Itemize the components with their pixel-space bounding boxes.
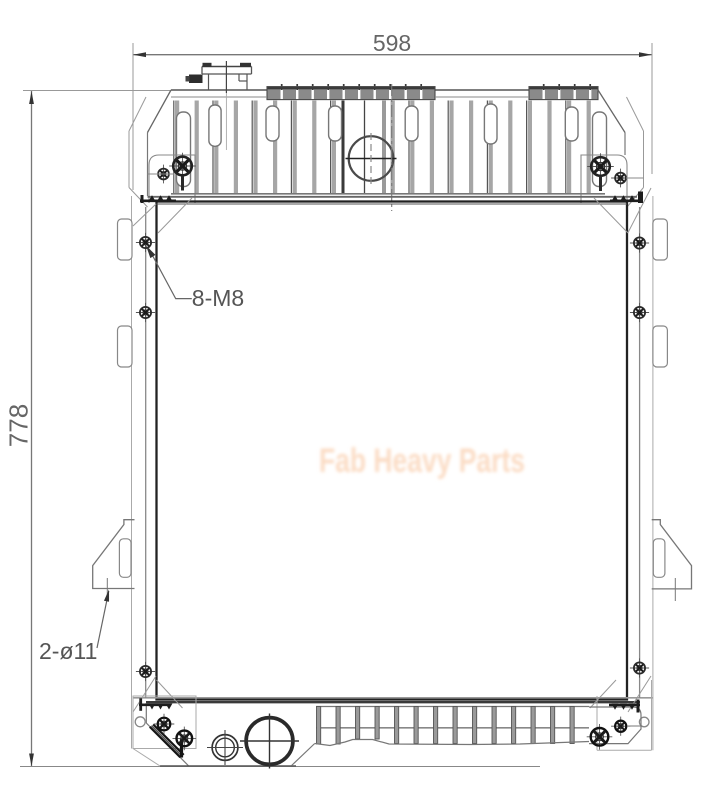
svg-text:598: 598 — [373, 30, 411, 56]
svg-text:2-ø11: 2-ø11 — [39, 638, 97, 664]
svg-text:778: 778 — [4, 404, 34, 447]
svg-text:8-M8: 8-M8 — [192, 285, 244, 311]
svg-text:Fab Heavy Parts: Fab Heavy Parts — [319, 442, 525, 480]
